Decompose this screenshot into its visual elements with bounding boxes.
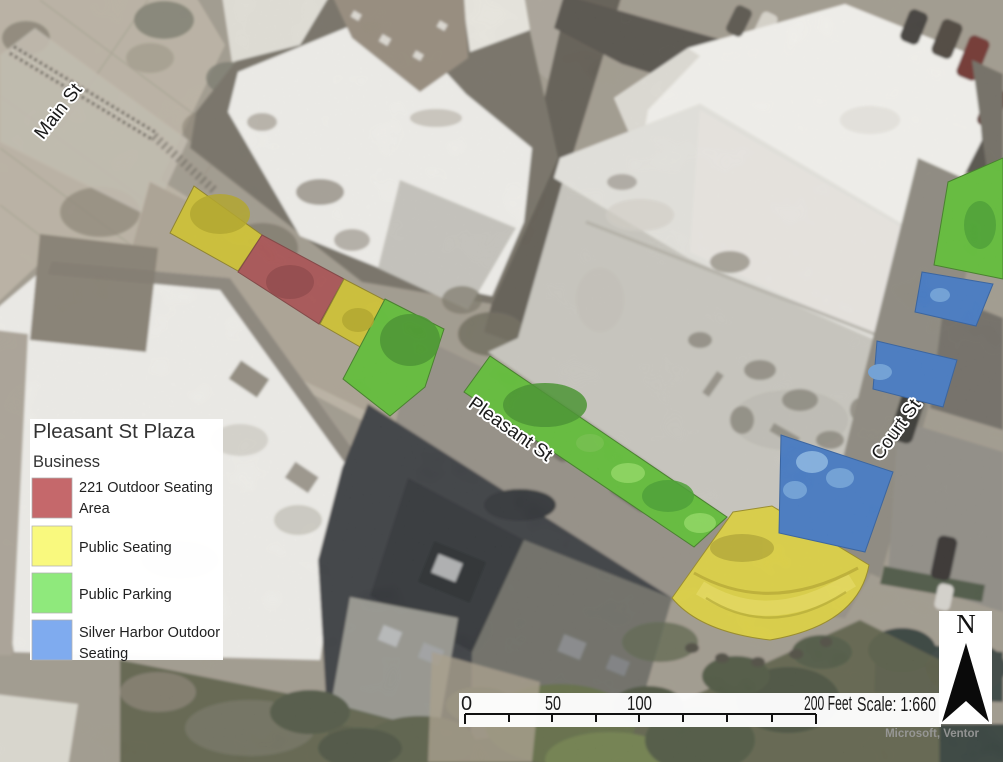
svg-text:Seating: Seating [79, 646, 128, 662]
svg-text:0: 0 [461, 693, 472, 715]
svg-text:100: 100 [627, 693, 652, 715]
svg-text:N: N [956, 609, 976, 639]
svg-text:Microsoft, Ventor: Microsoft, Ventor [885, 728, 979, 740]
svg-text:50: 50 [545, 693, 561, 715]
svg-text:Public Seating: Public Seating [79, 540, 172, 556]
svg-text:Scale: 1:660: Scale: 1:660 [857, 694, 936, 716]
svg-text:Pleasant St Plaza: Pleasant St Plaza [33, 420, 195, 443]
svg-text:Area: Area [79, 501, 111, 517]
svg-text:Business: Business [33, 453, 100, 471]
svg-text:200 Feet: 200 Feet [804, 693, 852, 715]
svg-text:Silver Harbor Outdoor: Silver Harbor Outdoor [79, 625, 220, 641]
svg-text:221 Outdoor Seating: 221 Outdoor Seating [79, 480, 213, 496]
svg-text:Public Parking: Public Parking [79, 587, 172, 603]
